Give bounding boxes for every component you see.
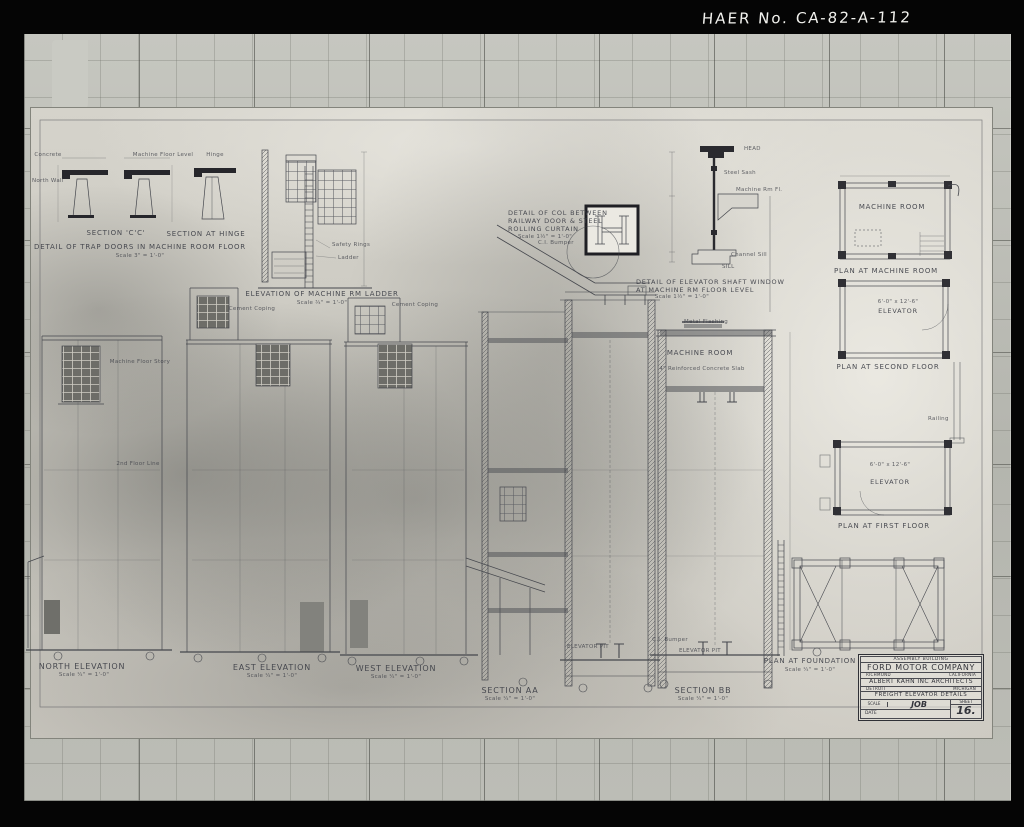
note-metal-flashing: Metal Flashing	[684, 319, 728, 325]
titleblock-sheet-number: 16.	[951, 705, 981, 718]
caption-north-elevation: NORTH ELEVATION	[39, 662, 126, 671]
label-elevator-second: ELEVATOR	[878, 307, 918, 315]
note-ci-bumper-bb: C.I. Bumper	[652, 637, 688, 643]
caption-section-hinge: SECTION AT HINGE	[166, 230, 245, 238]
titleblock-location-city: RICHMOND	[866, 673, 891, 678]
caption-col-detail-2: RAILWAY DOOR & STEEL	[508, 217, 603, 225]
titleblock-company: FORD MOTOR COMPANY	[861, 663, 981, 673]
label-elevator-pit-aa: ELEVATOR PIT	[567, 644, 609, 650]
caption-west-elevation-scale: Scale ¼" = 1'-0"	[371, 674, 421, 680]
caption-section-aa-scale: Scale ¼" = 1'-0"	[485, 696, 535, 702]
caption-plan-machine-room: PLAN AT MACHINE ROOM	[834, 267, 938, 275]
caption-trap-doors-title: DETAIL OF TRAP DOORS IN MACHINE ROOM FLO…	[34, 243, 246, 251]
caption-plan-first-floor: PLAN AT FIRST FLOOR	[838, 522, 930, 530]
label-machine-room-plan: MACHINE ROOM	[859, 203, 925, 211]
titleblock-location-state: CALIFORNIA	[949, 673, 976, 678]
titleblock-scale-label: SCALE	[861, 702, 888, 707]
caption-shaft-window-1: DETAIL OF ELEVATOR SHAFT WINDOW	[636, 278, 785, 286]
caption-plan-foundation-scale: Scale ¼" = 1'-0"	[785, 667, 835, 673]
drawing-sheet	[30, 107, 993, 739]
titleblock-sheet-title: FREIGHT ELEVATOR DETAILS	[861, 692, 981, 699]
dim-first-floor: 6'-0" x 12'-6"	[870, 462, 911, 468]
note-cement-coping-west: Cement Coping	[392, 302, 438, 308]
titleblock-left-cells: SCALE JOB DATE	[861, 700, 951, 718]
note-reinforced-slab: 4" Reinforced Concrete Slab	[659, 366, 744, 372]
note-ladder: Ladder	[338, 255, 359, 261]
titleblock-architect-state: MICHIGAN	[953, 687, 976, 692]
note-hinge: Hinge	[206, 152, 224, 158]
haer-photograph: HAER No. CA-82-A-112	[0, 0, 1024, 827]
caption-plan-foundation: PLAN AT FOUNDATION	[764, 657, 856, 665]
note-safety-rings: Safety Rings	[332, 242, 370, 248]
label-elevator-first: ELEVATOR	[870, 478, 910, 486]
titleblock-architect-city: DETROIT	[866, 687, 886, 692]
caption-section-aa: SECTION AA	[482, 686, 539, 695]
haer-number-label: HAER No. CA-82-A-112	[701, 8, 912, 27]
note-channel-sill: Channel Sill	[731, 252, 767, 258]
caption-shaft-window-scale: Scale 1½" = 1'-0"	[655, 294, 709, 300]
caption-col-detail-3: ROLLING CURTAIN	[508, 225, 579, 233]
titleblock-date-label: DATE	[861, 710, 950, 718]
caption-west-elevation: WEST ELEVATION	[356, 664, 437, 673]
caption-ladder-scale: Scale ¾" = 1'-0"	[297, 300, 347, 306]
caption-north-elevation-scale: Scale ¼" = 1'-0"	[59, 672, 109, 678]
note-machine-floor-story: Machine Floor Story	[110, 359, 170, 365]
note-railing: Railing	[928, 416, 949, 422]
label-elevator-pit-bb: ELEVATOR PIT	[679, 648, 721, 654]
note-2nd-floor-line: 2nd Floor Line	[116, 461, 159, 467]
caption-section-cc: SECTION 'C'C'	[86, 229, 145, 237]
label-machine-room-section: MACHINE ROOM	[667, 349, 733, 357]
note-ci-bumper: C.I. Bumper	[538, 240, 574, 246]
caption-plan-second-floor: PLAN AT SECOND FLOOR	[837, 363, 940, 371]
caption-east-elevation: EAST ELEVATION	[233, 663, 311, 672]
note-cement-coping-east: Cement Coping	[229, 306, 275, 312]
dim-second-floor: 6'-0" x 12'-6"	[878, 299, 919, 305]
titleblock-architect: ALBERT KAHN INC ARCHITECTS	[861, 679, 981, 687]
caption-trap-doors-scale: Scale 3" = 1'-0"	[116, 253, 165, 259]
caption-section-bb: SECTION BB	[675, 686, 732, 695]
caption-ladder-title: ELEVATION OF MACHINE RM LADDER	[245, 290, 398, 298]
titleblock-right-cells: SHEET 16.	[951, 700, 981, 718]
titleblock-bottom: SCALE JOB DATE SHEET 16.	[861, 700, 981, 718]
note-machine-floor-level: Machine Floor Level	[133, 152, 193, 158]
caption-col-detail-1: DETAIL OF COL BETWEEN	[508, 209, 608, 217]
caption-east-elevation-scale: Scale ¼" = 1'-0"	[247, 673, 297, 679]
note-steel-sash: Steel Sash	[724, 170, 756, 176]
note-north-wall: North Wall	[32, 178, 64, 184]
titleblock-job-label: JOB	[888, 700, 950, 709]
title-block: ASSEMBLY BUILDING FORD MOTOR COMPANY RIC…	[858, 654, 984, 721]
label-head: HEAD	[744, 146, 761, 152]
label-sill: SILL	[722, 264, 734, 270]
caption-section-bb-scale: Scale ¼" = 1'-0"	[678, 696, 728, 702]
caption-shaft-window-2: AT MACHINE RM FLOOR LEVEL	[636, 286, 754, 294]
note-machine-rm-fl: Machine Rm Fl.	[736, 187, 782, 193]
note-concrete: Concrete	[34, 152, 61, 158]
